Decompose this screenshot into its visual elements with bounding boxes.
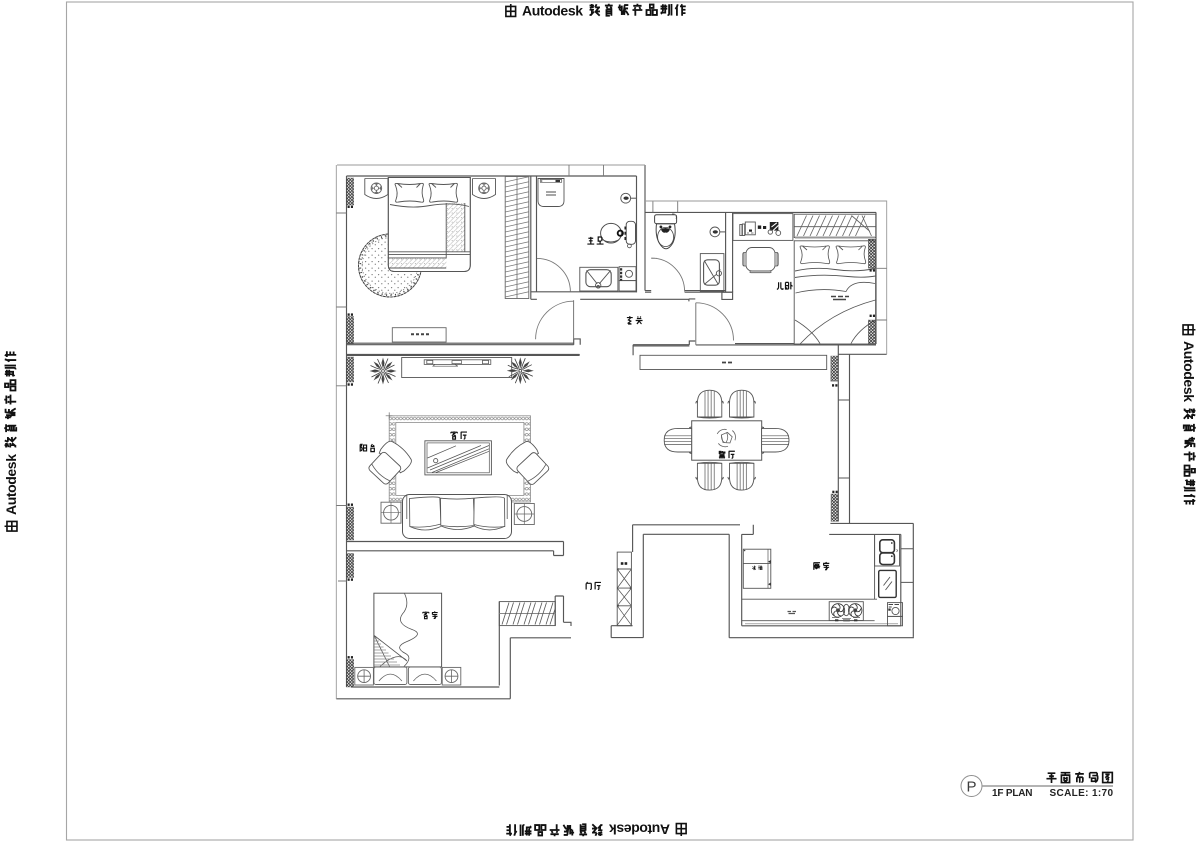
svg-text:1F PLAN: 1F PLAN <box>992 788 1033 799</box>
svg-text:P: P <box>966 779 976 796</box>
svg-text:SCALE: 1:70: SCALE: 1:70 <box>1050 788 1114 799</box>
